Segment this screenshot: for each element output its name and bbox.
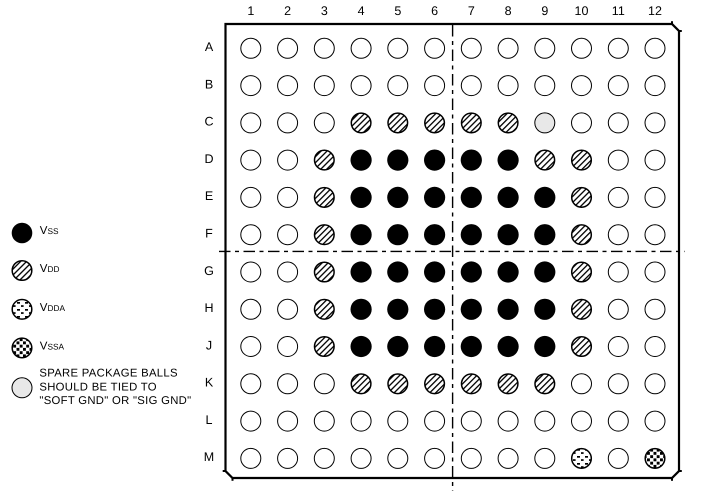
svg-text:G: G (204, 264, 214, 278)
svg-text:L: L (206, 413, 213, 427)
svg-text:10: 10 (575, 4, 589, 18)
svg-text:D: D (204, 152, 213, 166)
svg-text:7: 7 (468, 4, 475, 18)
svg-text:C: C (204, 115, 213, 129)
svg-text:6: 6 (431, 4, 438, 18)
svg-text:5: 5 (394, 4, 401, 18)
svg-text:SPARE PACKAGE BALLS: SPARE PACKAGE BALLS (39, 368, 178, 380)
svg-text:M: M (204, 450, 214, 464)
svg-text:4: 4 (358, 4, 365, 18)
svg-text:SHOULD BE TIED TO: SHOULD BE TIED TO (39, 381, 156, 393)
svg-text:J: J (206, 338, 212, 352)
svg-text:VSS: VSS (40, 225, 59, 237)
svg-text:B: B (205, 77, 213, 91)
svg-text:VSSA: VSSA (40, 341, 65, 353)
svg-text:F: F (205, 227, 213, 241)
svg-text:A: A (205, 40, 214, 54)
svg-text:1: 1 (247, 4, 254, 18)
svg-text:"SOFT GND" OR "SIG GND": "SOFT GND" OR "SIG GND" (39, 395, 191, 407)
svg-text:11: 11 (612, 4, 625, 18)
svg-text:3: 3 (321, 4, 328, 18)
svg-text:E: E (205, 189, 213, 203)
svg-text:12: 12 (648, 4, 662, 18)
svg-text:9: 9 (541, 4, 548, 18)
svg-text:2: 2 (284, 4, 291, 18)
svg-text:8: 8 (505, 4, 512, 18)
svg-text:K: K (205, 376, 214, 390)
svg-text:H: H (204, 301, 213, 315)
svg-text:VDDA: VDDA (40, 302, 66, 314)
svg-text:VDD: VDD (40, 263, 60, 275)
